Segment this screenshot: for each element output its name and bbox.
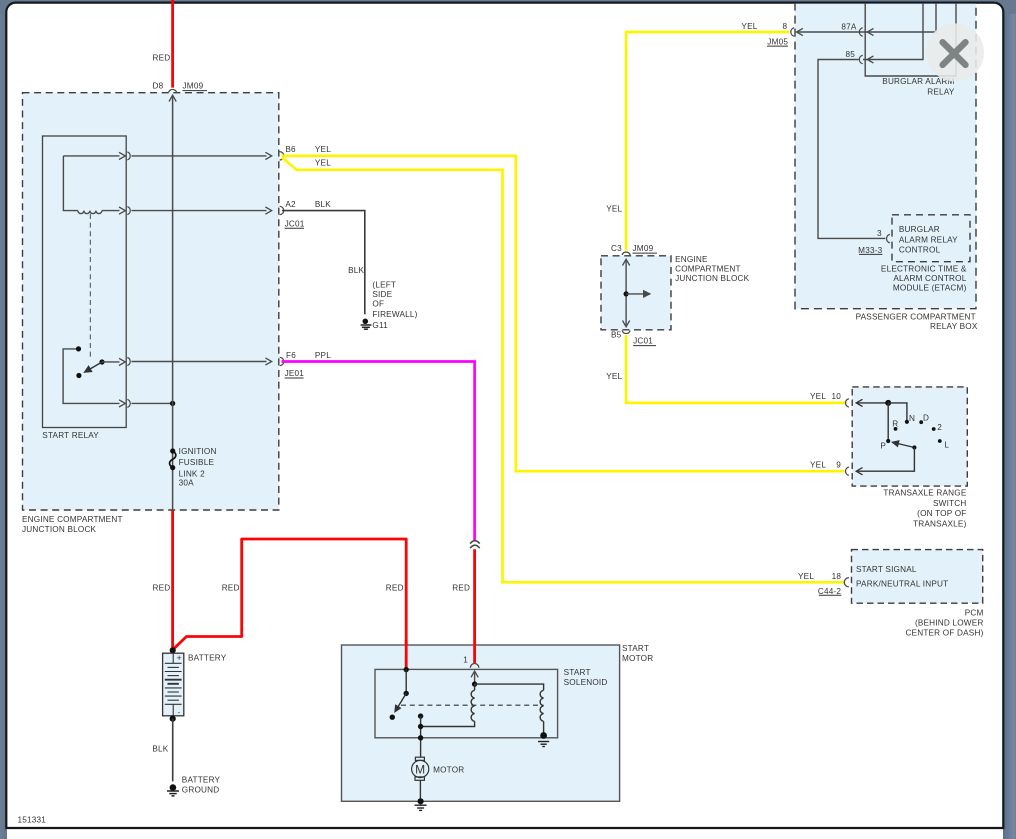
svg-text:BLK: BLK	[315, 200, 331, 209]
svg-text:10: 10	[831, 392, 841, 401]
svg-text:1: 1	[463, 656, 468, 665]
svg-text:FUSIBLE: FUSIBLE	[179, 458, 215, 467]
svg-text:ENGINE: ENGINE	[675, 255, 708, 264]
svg-text:MOTOR: MOTOR	[433, 765, 464, 774]
svg-text:RED: RED	[153, 53, 171, 62]
svg-text:YEL: YEL	[810, 392, 826, 401]
svg-text:3: 3	[877, 229, 882, 238]
svg-text:PCM: PCM	[965, 608, 984, 617]
svg-text:D8: D8	[153, 82, 164, 91]
svg-text:RELAY BOX: RELAY BOX	[930, 322, 978, 331]
svg-text:-: -	[178, 708, 181, 717]
svg-text:OF: OF	[372, 300, 384, 309]
svg-text:+: +	[177, 653, 182, 663]
svg-text:2: 2	[937, 423, 942, 432]
svg-text:CONTROL: CONTROL	[899, 246, 941, 255]
svg-text:START: START	[564, 668, 591, 677]
svg-text:YEL: YEL	[798, 572, 814, 581]
svg-text:JC01: JC01	[633, 337, 653, 346]
svg-text:30A: 30A	[179, 478, 195, 487]
svg-text:YEL: YEL	[606, 372, 622, 381]
svg-text:MOTOR: MOTOR	[622, 654, 653, 663]
svg-text:M: M	[415, 762, 425, 776]
svg-text:(BEHIND LOWER: (BEHIND LOWER	[915, 618, 984, 627]
svg-text:9: 9	[836, 461, 841, 470]
svg-text:D: D	[923, 414, 929, 423]
svg-text:YEL: YEL	[315, 159, 331, 168]
svg-text:151331: 151331	[18, 816, 47, 825]
svg-text:M33-3: M33-3	[858, 246, 882, 255]
svg-text:ENGINE COMPARTMENT: ENGINE COMPARTMENT	[22, 515, 123, 524]
svg-text:START SIGNAL: START SIGNAL	[856, 565, 917, 574]
svg-text:JM09: JM09	[633, 244, 654, 253]
svg-text:CENTER OF DASH): CENTER OF DASH)	[905, 629, 983, 638]
svg-text:TRANSAXLE): TRANSAXLE)	[913, 519, 966, 528]
svg-text:YEL: YEL	[810, 461, 826, 470]
svg-text:B5: B5	[611, 331, 622, 340]
svg-text:RED: RED	[153, 584, 171, 593]
svg-text:BLK: BLK	[152, 745, 168, 754]
svg-text:ALARM CONTROL: ALARM CONTROL	[893, 274, 966, 283]
svg-text:JE01: JE01	[285, 369, 305, 378]
svg-text:JUNCTION BLOCK: JUNCTION BLOCK	[675, 274, 750, 283]
svg-text:IGNITION: IGNITION	[179, 447, 217, 456]
svg-text:C3: C3	[611, 244, 622, 253]
svg-text:PASSENGER COMPARTMENT: PASSENGER COMPARTMENT	[856, 313, 976, 322]
svg-text:C44-2: C44-2	[818, 587, 842, 596]
svg-text:FIREWALL): FIREWALL)	[372, 310, 417, 319]
svg-text:P: P	[880, 442, 886, 451]
svg-text:N: N	[909, 414, 915, 423]
svg-text:87A: 87A	[841, 23, 857, 32]
svg-text:PARK/NEUTRAL INPUT: PARK/NEUTRAL INPUT	[856, 580, 948, 589]
svg-text:RED: RED	[452, 584, 470, 593]
svg-text:LINK 2: LINK 2	[179, 469, 205, 478]
svg-text:G11: G11	[372, 321, 388, 330]
svg-text:18: 18	[832, 572, 842, 581]
svg-text:START RELAY: START RELAY	[42, 431, 99, 440]
svg-text:MODULE (ETACM): MODULE (ETACM)	[893, 284, 967, 293]
svg-text:85: 85	[845, 50, 855, 59]
svg-text:BATTERY: BATTERY	[182, 776, 221, 785]
svg-text:SWITCH: SWITCH	[933, 499, 967, 508]
svg-text:SIDE: SIDE	[372, 290, 392, 299]
svg-text:BURGLAR: BURGLAR	[899, 225, 940, 234]
svg-text:B6: B6	[285, 145, 296, 154]
svg-text:START: START	[622, 644, 649, 653]
svg-text:(ON TOP OF: (ON TOP OF	[917, 509, 966, 518]
svg-text:JM09: JM09	[183, 82, 204, 91]
svg-text:TRANSAXLE RANGE: TRANSAXLE RANGE	[883, 489, 966, 498]
svg-text:YEL: YEL	[606, 205, 622, 214]
svg-text:8: 8	[783, 22, 788, 31]
svg-text:GROUND: GROUND	[182, 786, 220, 795]
svg-text:JC01: JC01	[285, 220, 305, 229]
svg-text:ALARM RELAY: ALARM RELAY	[899, 235, 958, 244]
svg-text:RED: RED	[386, 584, 404, 593]
svg-text:F6: F6	[286, 351, 296, 360]
svg-text:RED: RED	[222, 584, 240, 593]
svg-text:BLK: BLK	[348, 266, 364, 275]
svg-text:(LEFT: (LEFT	[372, 281, 396, 290]
svg-text:YEL: YEL	[741, 22, 757, 31]
svg-text:ELECTRONIC TIME &: ELECTRONIC TIME &	[881, 264, 967, 273]
svg-text:A2: A2	[285, 200, 296, 209]
svg-text:COMPARTMENT: COMPARTMENT	[675, 264, 741, 273]
svg-text:L: L	[944, 441, 949, 450]
svg-text:SOLENOID: SOLENOID	[564, 678, 608, 687]
svg-text:JM05: JM05	[767, 38, 788, 47]
svg-text:RELAY: RELAY	[927, 88, 955, 97]
svg-text:YEL: YEL	[315, 145, 331, 154]
svg-text:PPL: PPL	[315, 351, 331, 360]
svg-text:BATTERY: BATTERY	[188, 654, 227, 663]
svg-text:JUNCTION BLOCK: JUNCTION BLOCK	[22, 525, 97, 534]
